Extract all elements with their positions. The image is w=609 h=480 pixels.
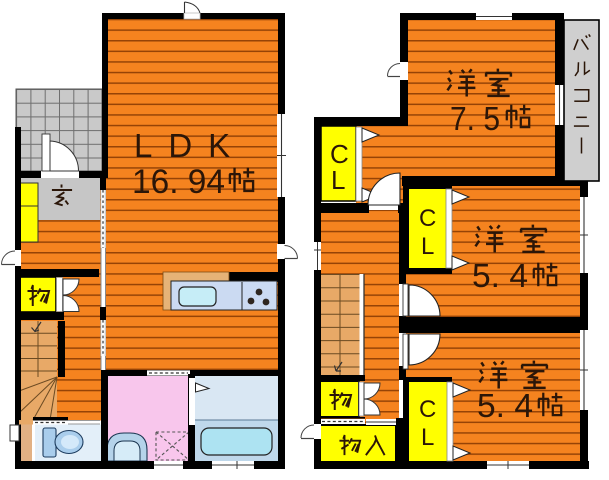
svg-text:L: L: [421, 424, 434, 451]
svg-text:5. 4: 5. 4: [472, 257, 528, 294]
svg-text:LDK: LDK: [134, 127, 246, 164]
svg-text:7. 5: 7. 5: [450, 100, 500, 137]
svg-text:L: L: [331, 165, 345, 195]
svg-text:16. 94: 16. 94: [132, 163, 225, 201]
svg-text:C: C: [419, 396, 436, 423]
svg-text:C: C: [419, 205, 436, 232]
svg-text:5. 4: 5. 4: [477, 387, 533, 424]
svg-text:L: L: [421, 233, 434, 260]
